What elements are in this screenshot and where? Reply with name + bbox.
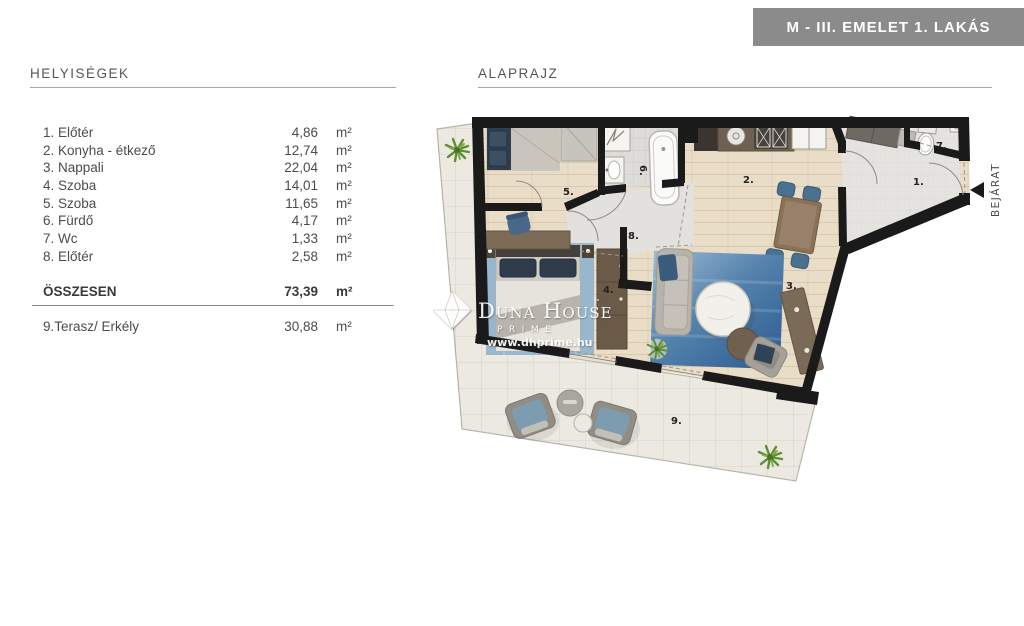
- desk: [484, 231, 570, 249]
- rooms-header: HELYISÉGEK: [30, 66, 130, 81]
- room-number-label: 5.: [563, 187, 574, 198]
- plan-header-rule: [478, 87, 992, 88]
- total-unit: m²: [336, 284, 353, 299]
- room-number-label: 4.: [603, 285, 614, 296]
- room-area: 11,65: [260, 196, 318, 211]
- room-name: 6. Fürdő: [43, 213, 93, 228]
- watermark-url: www.dhprime.hu: [487, 336, 593, 349]
- entrance-label: BEJÁRAT: [989, 163, 1002, 217]
- bathtub: [649, 131, 680, 206]
- room-row: 7. Wc 1,33 m²: [30, 230, 396, 248]
- watermark-sub: PRIME: [497, 325, 557, 335]
- room-row: 3. Nappali 22,04 m²: [30, 159, 396, 177]
- room-unit: m²: [336, 213, 352, 228]
- total-row: ÖSSZESEN 73,39 m²: [30, 283, 396, 301]
- total-label: ÖSSZESEN: [43, 284, 117, 299]
- floor-plan: 1. 2. 3. 4. 5. 6. 7. 8. 9. BEJÁRAT Duna …: [430, 103, 1024, 503]
- sofa: [655, 248, 694, 335]
- room-row: 4. Szoba 14,01 m²: [30, 177, 396, 195]
- plant: [647, 339, 667, 359]
- room-name: 2. Konyha - étkező: [43, 143, 156, 158]
- room-number-label: 2.: [743, 175, 754, 186]
- terrace-side-table: [574, 414, 592, 432]
- room-area: 4,86: [260, 125, 318, 140]
- entrance-arrow-icon: [970, 182, 984, 198]
- room-area: 2,58: [260, 249, 318, 264]
- room-row: 6. Fürdő 4,17 m²: [30, 212, 396, 230]
- room-row: 8. Előtér 2,58 m²: [30, 248, 396, 266]
- room-row: 5. Szoba 11,65 m²: [30, 195, 396, 213]
- bed-room5: [487, 128, 559, 170]
- terrace-area: 30,88: [260, 319, 318, 334]
- plant: [758, 445, 782, 469]
- room-name: 1. Előtér: [43, 125, 93, 140]
- room-number-label: 8.: [628, 231, 639, 242]
- room-unit: m²: [336, 125, 352, 140]
- room-area: 22,04: [260, 160, 318, 175]
- plan-header: ALAPRAJZ: [478, 66, 558, 81]
- room-unit: m²: [336, 178, 352, 193]
- room-number-label: 9.: [671, 416, 682, 427]
- watermark-brand: Duna House: [478, 299, 613, 323]
- bathroom-sink: [604, 157, 624, 183]
- room-area: 12,74: [260, 143, 318, 158]
- room-unit: m²: [336, 160, 352, 175]
- plant: [445, 138, 469, 162]
- room-list: 1. Előtér 4,86 m² 2. Konyha - étkező 12,…: [30, 124, 396, 266]
- room-name: 3. Nappali: [43, 160, 104, 175]
- rooms-header-rule: [30, 87, 396, 88]
- room-number-label: 3.: [786, 281, 797, 292]
- terrace-row: 9.Terasz/ Erkély 30,88 m²: [30, 318, 396, 336]
- room-unit: m²: [336, 196, 352, 211]
- total-rule: [32, 305, 394, 306]
- floorplan-sheet: M - III. EMELET 1. LAKÁS HELYISÉGEK 1. E…: [0, 0, 1024, 626]
- stove: [754, 125, 788, 149]
- kitchen-sink: [727, 127, 745, 145]
- room-name: 8. Előtér: [43, 249, 93, 264]
- terrace-unit: m²: [336, 319, 352, 334]
- room-name: 5. Szoba: [43, 196, 96, 211]
- room-area: 4,17: [260, 213, 318, 228]
- room-unit: m²: [336, 249, 352, 264]
- room-number-label: 1.: [913, 177, 924, 188]
- terrace-name: 9.Terasz/ Erkély: [43, 319, 139, 334]
- watermark-tm: ™: [594, 298, 601, 306]
- room-row: 2. Konyha - étkező 12,74 m²: [30, 142, 396, 160]
- room-row: 1. Előtér 4,86 m²: [30, 124, 396, 142]
- room-name: 4. Szoba: [43, 178, 96, 193]
- room-number-label: 6.: [637, 165, 648, 176]
- total-area: 73,39: [260, 284, 318, 299]
- title-banner-text: M - III. EMELET 1. LAKÁS: [786, 19, 990, 36]
- room-name: 7. Wc: [43, 231, 78, 246]
- room-area: 14,01: [260, 178, 318, 193]
- room-unit: m²: [336, 143, 352, 158]
- title-banner: M - III. EMELET 1. LAKÁS: [753, 8, 1024, 46]
- room-number-label: 7.: [936, 141, 947, 152]
- room-unit: m²: [336, 231, 352, 246]
- entrance-marker: BEJÁRAT: [970, 163, 1002, 217]
- room-area: 1,33: [260, 231, 318, 246]
